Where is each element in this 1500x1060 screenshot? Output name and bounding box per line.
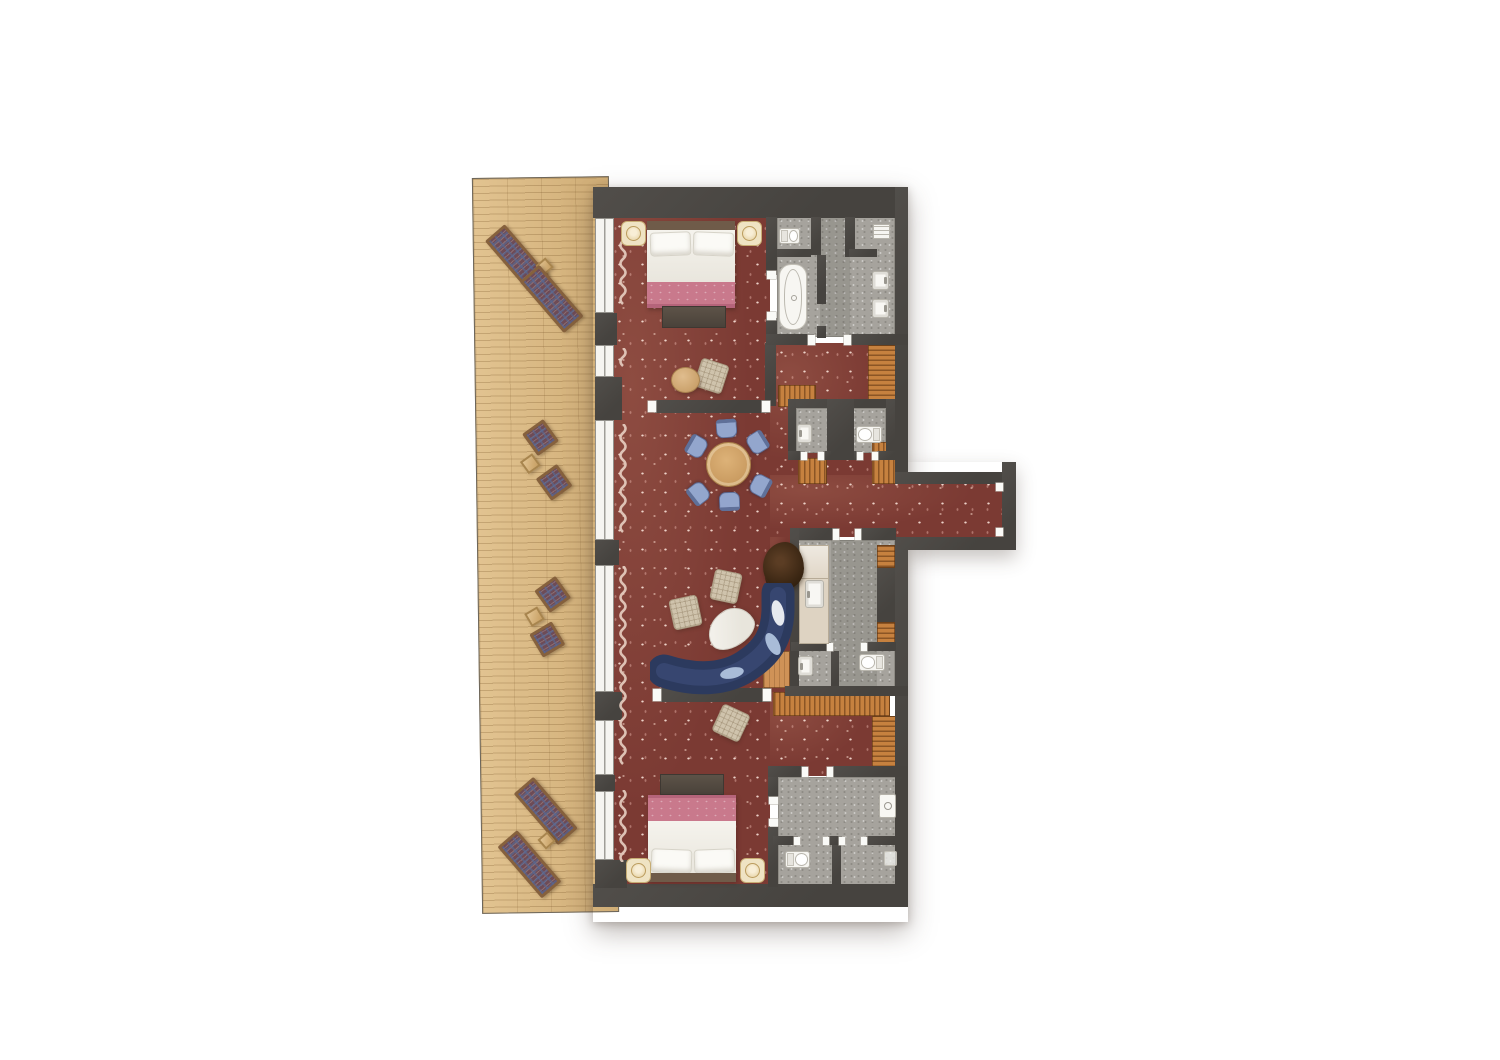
wall-right-upper <box>895 187 908 477</box>
side-table <box>520 453 541 474</box>
door-mark <box>996 528 1003 536</box>
pillow <box>694 848 736 873</box>
toilet-icon <box>856 426 882 443</box>
sink-icon <box>872 299 889 318</box>
side-table <box>524 606 545 627</box>
hand-sink-icon <box>797 424 812 443</box>
wall-bath3 <box>768 766 806 777</box>
wall-corner <box>595 860 627 888</box>
window <box>595 565 614 692</box>
nightstand-lamp <box>740 858 765 883</box>
curtain <box>617 424 629 534</box>
door-mark <box>762 401 770 412</box>
wall-bottom <box>593 884 908 907</box>
bed-top <box>647 221 735 308</box>
wall-right-lower <box>895 545 908 886</box>
window <box>595 720 614 775</box>
wall-bath1-left <box>766 217 777 275</box>
sink-icon <box>872 271 889 290</box>
curtain <box>617 566 629 772</box>
door-mark <box>769 819 778 826</box>
window <box>595 791 614 860</box>
window <box>595 218 614 313</box>
wall-bath2 <box>877 568 895 622</box>
headboard <box>648 873 736 882</box>
nightstand-lamp <box>737 221 762 246</box>
wall-corridor-bottom <box>895 537 1007 550</box>
wall-corridor-top <box>895 472 1007 484</box>
towel-shelf <box>877 545 895 568</box>
wall-bath1-int <box>817 255 826 304</box>
door-mark <box>857 452 863 460</box>
door-mark <box>818 452 824 460</box>
round-pouf <box>671 367 700 393</box>
wall-divider-top <box>655 400 769 413</box>
door-mark <box>844 335 851 345</box>
window <box>595 345 614 377</box>
curtain <box>617 790 629 862</box>
wall-bath1-bottom <box>849 334 908 345</box>
pillow <box>693 231 735 256</box>
headboard <box>647 221 735 230</box>
floor-plan-canvas <box>0 0 1500 1060</box>
dining-table <box>706 442 751 487</box>
door-mark <box>827 643 833 651</box>
wall-bath2 <box>860 528 896 540</box>
window <box>595 420 614 540</box>
door-mark <box>648 401 656 412</box>
door-mark <box>855 529 861 540</box>
bathtub-icon <box>779 264 807 330</box>
foot-bench <box>662 306 726 328</box>
wall-bath1-bottom <box>766 334 814 345</box>
door-mark <box>861 837 867 845</box>
door-mark <box>767 271 776 279</box>
door-mark <box>827 767 833 777</box>
bed-runner <box>648 798 736 821</box>
pillow <box>650 231 692 256</box>
door-mark <box>802 767 808 777</box>
door-mark <box>808 335 815 345</box>
wall-wc <box>827 399 854 460</box>
foot-bench <box>660 774 724 795</box>
armchair <box>529 621 565 658</box>
nightstand-lamp <box>621 221 646 246</box>
nightstand-lamp <box>626 858 651 883</box>
wall-wc <box>877 451 895 460</box>
wall-pier <box>595 313 617 345</box>
wall-bath1-int <box>849 249 877 257</box>
wall-bath3 <box>832 766 908 777</box>
curved-sofa <box>650 583 810 695</box>
wall-bath1-int <box>811 217 821 255</box>
curtain <box>617 348 629 374</box>
wall-hall <box>765 343 776 406</box>
door-mark <box>794 837 800 845</box>
armchair <box>534 576 571 613</box>
door-mark <box>833 529 839 540</box>
door-mark <box>769 797 778 804</box>
door-mark <box>823 837 829 845</box>
wall-bath2 <box>866 642 896 651</box>
towel-rack-icon <box>873 224 890 239</box>
pillow <box>651 848 693 873</box>
wall-bath1-int <box>777 249 811 257</box>
toilet-icon <box>859 654 885 671</box>
bed-bottom <box>648 795 736 881</box>
shower-control-icon <box>879 794 896 818</box>
wall-bath3 <box>866 836 902 845</box>
wall-bath3 <box>832 845 841 887</box>
door-mark <box>861 643 867 651</box>
bed-runner <box>647 282 735 304</box>
door-mark <box>996 483 1003 491</box>
toilet-icon <box>785 851 810 868</box>
armchair <box>522 419 559 456</box>
closet <box>798 458 827 484</box>
door-mark <box>767 312 776 320</box>
armchair <box>536 464 573 501</box>
floor-drain-icon <box>884 851 897 866</box>
wall-pier <box>595 377 622 420</box>
door-mark <box>839 837 845 845</box>
wardrobe <box>868 345 896 407</box>
wall-pier <box>595 775 615 791</box>
door-mark <box>801 452 807 460</box>
dining-chair <box>719 492 741 512</box>
sun-lounger <box>520 265 584 333</box>
wall-pier <box>595 540 619 565</box>
wall-top <box>593 187 908 218</box>
wall-wc <box>823 451 831 460</box>
dining-chair <box>715 418 737 438</box>
wall-bath1-int <box>817 326 826 338</box>
toilet-icon <box>779 228 800 244</box>
door-mark <box>872 452 878 460</box>
